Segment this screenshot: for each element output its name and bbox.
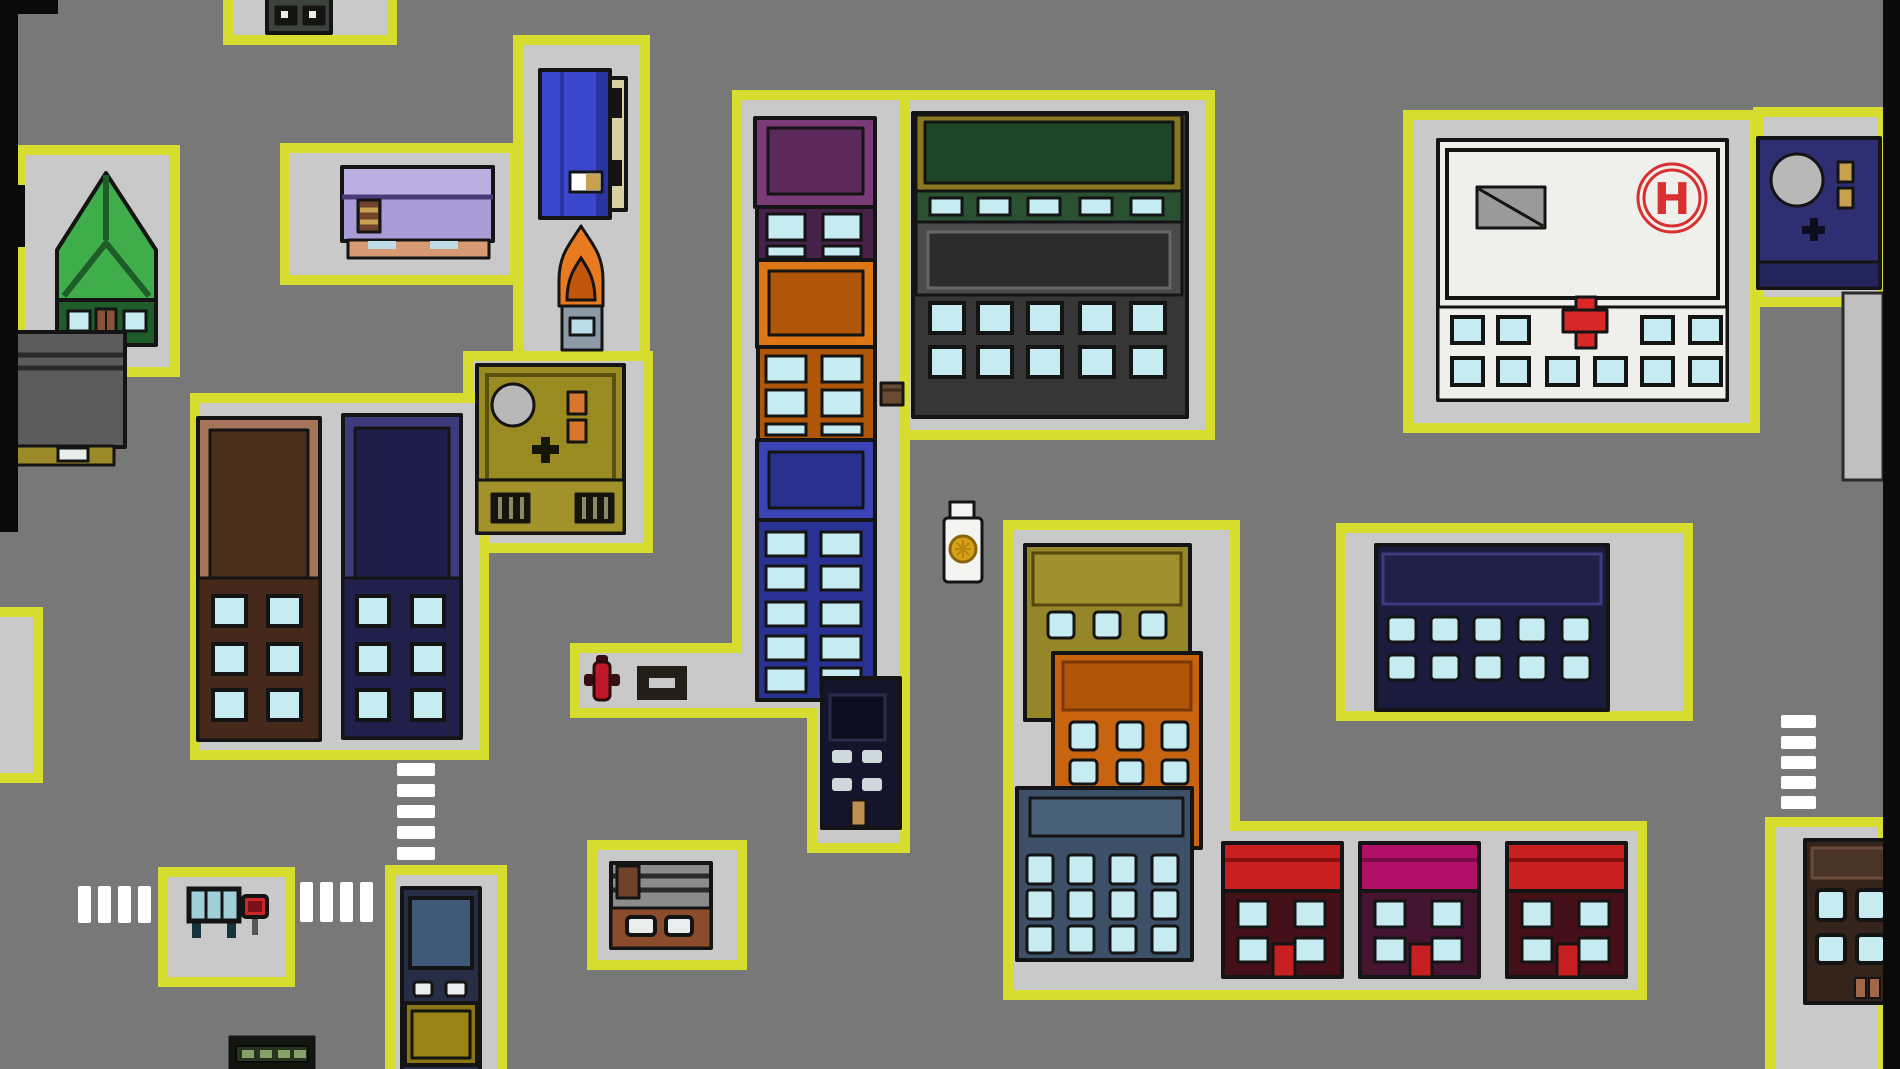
magenta-shop xyxy=(1360,843,1479,977)
steel-roof-panel xyxy=(1030,798,1183,836)
right-black-bar xyxy=(1883,0,1900,1069)
tower-roof-panel xyxy=(355,428,449,580)
highrise-door xyxy=(851,800,866,826)
olive-roof-panel xyxy=(1033,553,1181,605)
brown-apartment-bottom-right xyxy=(1805,840,1895,1003)
stacked-tower-purple-orange-blue xyxy=(755,118,875,700)
office-roof-panel xyxy=(1383,554,1601,604)
green-gold-office-block xyxy=(913,113,1187,417)
tower-screen-panel xyxy=(410,898,472,968)
house-window xyxy=(68,311,90,331)
navy-base xyxy=(1758,262,1880,288)
shop-door xyxy=(1557,944,1579,977)
apartment-door xyxy=(1855,978,1866,998)
brown-kiosk xyxy=(611,863,711,948)
apartment-door xyxy=(1869,978,1880,998)
shop-awning xyxy=(1223,843,1342,891)
green-vent-box xyxy=(230,1037,314,1069)
rooftop-hvac-small xyxy=(267,0,331,33)
navy-apartment-tower xyxy=(343,415,461,738)
store-roof-band xyxy=(344,169,491,195)
lavender-store xyxy=(342,167,493,258)
roof-vent xyxy=(1838,188,1853,208)
shop-awning xyxy=(1507,843,1626,891)
red-shop-1 xyxy=(1223,843,1342,977)
blue-vending-machine xyxy=(540,70,626,218)
rooftop-skylight xyxy=(492,384,534,426)
shop-awning xyxy=(1360,843,1479,891)
rooftop-skylight xyxy=(1771,154,1823,206)
roof-vent xyxy=(568,420,586,442)
barrel xyxy=(358,200,380,232)
left-bar-notch xyxy=(12,185,25,247)
hospital-with-helipad: H xyxy=(1438,140,1727,400)
bus-stop xyxy=(189,889,267,938)
helipad-h-label: H xyxy=(1654,174,1691,225)
olive-military-rooftop xyxy=(477,365,624,533)
highrise-roof-panel xyxy=(830,695,885,740)
game-viewport[interactable]: H xyxy=(0,0,1900,1069)
roof-vent xyxy=(568,392,586,414)
left-black-bar xyxy=(0,0,18,532)
house-window xyxy=(124,311,146,331)
bus-stop-shelter xyxy=(189,889,239,921)
tower-roof-panel xyxy=(210,430,308,580)
sidewalk-left-strip xyxy=(0,612,38,778)
gray-rooftop-left xyxy=(0,332,125,465)
kiosk-window xyxy=(627,917,655,935)
wooden-crate xyxy=(881,383,903,405)
navy-rooftop-right xyxy=(1758,138,1880,288)
steel-blue-apartment xyxy=(1017,788,1192,960)
grated-window xyxy=(576,494,613,522)
grated-window xyxy=(492,494,529,522)
apartment-roof-trim xyxy=(1812,848,1895,878)
cart-window xyxy=(570,318,594,335)
right-edge-rooftop xyxy=(1843,293,1883,480)
top-left-black-box xyxy=(0,0,58,14)
game-screen: H xyxy=(0,0,1900,1069)
dark-highrise-small xyxy=(822,678,900,828)
shop-door xyxy=(1410,944,1432,977)
shop-door xyxy=(1273,944,1295,977)
navy-office-block xyxy=(1376,545,1608,710)
orange-roof-panel xyxy=(1063,662,1191,710)
kiosk-window xyxy=(666,917,692,935)
brown-apartment-tower xyxy=(198,418,320,740)
barrel xyxy=(617,866,639,898)
red-shop-2 xyxy=(1507,843,1626,977)
slate-vending-tower xyxy=(402,888,480,1069)
gray-roof-panel xyxy=(928,232,1170,288)
roof-vent xyxy=(1838,162,1853,182)
